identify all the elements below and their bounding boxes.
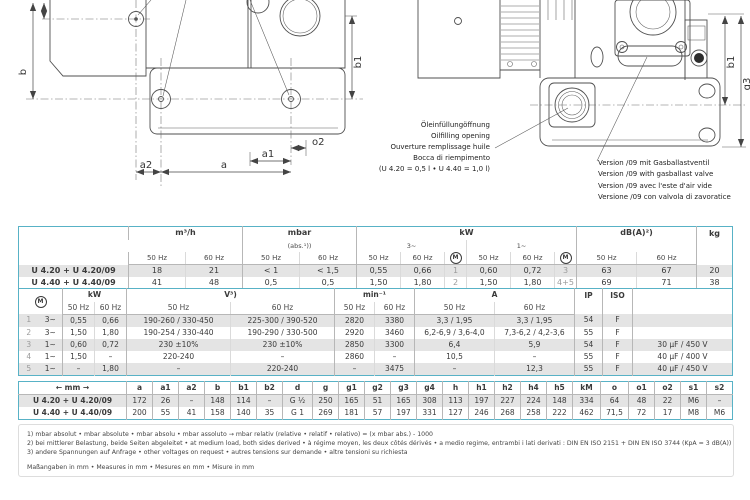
note-line: Version /09 mit Gasballastventil xyxy=(598,158,731,169)
value-cell: 1,50 xyxy=(63,351,95,363)
note-line: Oilfilling opening xyxy=(308,131,490,142)
value-cell: 22 xyxy=(655,395,681,408)
col-header: a1 xyxy=(153,382,179,395)
col-header: a2 xyxy=(179,382,205,395)
value-cell: < 1 xyxy=(243,265,300,278)
col-header: h1 xyxy=(469,382,495,395)
col-header-60hz: 60 Hz xyxy=(231,302,335,315)
value-cell: 1,80 xyxy=(95,327,127,339)
housing-outline xyxy=(540,78,720,146)
col-group-kw: kW xyxy=(63,289,127,302)
value-cell: 21 xyxy=(186,265,243,278)
dim-label-a1: a1 xyxy=(262,149,275,160)
phase-cell: 1~ xyxy=(39,363,63,376)
value-cell: F xyxy=(603,339,633,351)
value-cell: F xyxy=(603,327,633,339)
value-cell: 462 xyxy=(573,407,601,420)
value-cell: 148 xyxy=(547,395,573,408)
col-header: o xyxy=(601,382,629,395)
col-header: h2 xyxy=(495,382,521,395)
one-phase-label: 1~ xyxy=(467,240,577,252)
value-cell: 308 xyxy=(417,395,443,408)
col-header: b2 xyxy=(257,382,283,395)
col-header-60hz: 60 Hz xyxy=(300,252,357,265)
pump-top-view-drawing: b b1 a2 a a1 o2 xyxy=(18,0,398,220)
col-header: b xyxy=(205,382,231,395)
footnote-1: 1) mbar absolut • mbar absolute • mbar a… xyxy=(27,430,725,439)
col-group-speed: min⁻¹ xyxy=(335,289,415,302)
value-cell: 230 ±10% xyxy=(127,339,231,351)
value-cell: – xyxy=(707,395,733,408)
capacitor-cell: 30 µF / 450 V xyxy=(633,339,733,351)
value-cell: 67 xyxy=(637,265,697,278)
value-cell: 230 ±10% xyxy=(231,339,335,351)
value-cell: 268 xyxy=(495,407,521,420)
col-header: d xyxy=(283,382,313,395)
value-cell: 190-254 / 330-440 xyxy=(127,327,231,339)
performance-table: m³/h mbar kW dB(A)²) kg (abs.¹)) 3~ 1~ 5… xyxy=(18,226,733,290)
value-cell: 181 xyxy=(339,407,365,420)
col-header: g1 xyxy=(339,382,365,395)
dim-label-b: b xyxy=(18,69,29,75)
value-cell: 172 xyxy=(127,395,153,408)
value-cell: 48 xyxy=(629,395,655,408)
col-header-50hz: 50 Hz xyxy=(335,302,375,315)
value-cell: 246 xyxy=(469,407,495,420)
phase-cell: 1~ xyxy=(39,351,63,363)
motor-circle-icon: M xyxy=(19,289,63,315)
phase-cell: 1~ xyxy=(39,339,63,351)
value-cell: 224 xyxy=(521,395,547,408)
col-header-50hz: 50 Hz xyxy=(357,252,401,265)
motor-electrical-table: M kW V³) min⁻¹ A IP ISO 50 Hz 60 Hz 50 H… xyxy=(18,288,733,376)
spacer-cell xyxy=(129,240,243,252)
motor-number-cell: 2 xyxy=(19,327,39,339)
callout-leaders xyxy=(495,57,647,161)
footnotes: 1) mbar absolut • mbar absolute • mbar a… xyxy=(18,424,734,477)
note-line: (U 4.20 = 0,5 l • U 4.40 = 1,0 l) xyxy=(308,164,490,175)
value-cell: – xyxy=(495,351,575,363)
value-cell: 3460 xyxy=(375,327,415,339)
value-cell: G ½ xyxy=(283,395,313,408)
value-cell: 7,3-6,2 / 4,2-3,6 xyxy=(495,327,575,339)
value-cell: 0,66 xyxy=(401,265,445,278)
model-cell: U 4.20 + U 4.20/09 xyxy=(19,265,129,278)
value-cell: – xyxy=(179,395,205,408)
value-cell: 269 xyxy=(313,407,339,420)
value-cell: 3475 xyxy=(375,363,415,376)
value-cell: 158 xyxy=(205,407,231,420)
value-cell: – xyxy=(257,395,283,408)
value-cell: – xyxy=(127,363,231,376)
value-cell: 3380 xyxy=(375,314,415,327)
col-header-60hz: 60 Hz xyxy=(511,252,555,265)
col-header-60hz: 60 Hz xyxy=(637,252,697,265)
col-header-60hz: 60 Hz xyxy=(186,252,243,265)
col-header: h xyxy=(443,382,469,395)
dimension-b1-right: b1 g3 xyxy=(708,14,750,147)
oil-filling-note: Öleinfüllungöffnung Oilfilling opening O… xyxy=(308,120,490,175)
note-line: Version /09 with gasballast valve xyxy=(598,169,731,180)
value-cell: 64 xyxy=(601,395,629,408)
value-cell: F xyxy=(603,351,633,363)
value-cell: 1,80 xyxy=(95,363,127,376)
value-cell: F xyxy=(603,363,633,376)
motor-ref-cell: 3 xyxy=(555,265,577,278)
footnote-2: 2) bei mittlerer Belastung, beide Seiten… xyxy=(27,439,725,448)
value-cell: 12,3 xyxy=(495,363,575,376)
value-cell: 2860 xyxy=(335,351,375,363)
value-cell: 331 xyxy=(417,407,443,420)
value-cell: M6 xyxy=(707,407,733,420)
col-group-pressure: mbar xyxy=(243,227,357,240)
col-header: o1 xyxy=(629,382,655,395)
col-header-50hz: 50 Hz xyxy=(63,302,95,315)
model-column-header xyxy=(19,227,129,265)
value-cell: 190-290 / 330-500 xyxy=(231,327,335,339)
capacitor-column-header xyxy=(633,289,733,315)
col-group-iso: ISO xyxy=(603,289,633,315)
dimensions-table: ← mm → a a1 a2 b b1 b2 d g g1 g2 g3 g4 h… xyxy=(18,381,733,420)
value-cell: 54 xyxy=(575,314,603,327)
three-phase-label: 3~ xyxy=(357,240,467,252)
capacitor-cell: 40 µF / 450 V xyxy=(633,363,733,376)
value-cell: 55 xyxy=(575,351,603,363)
value-cell: F xyxy=(603,314,633,327)
value-cell: 225-300 / 390-520 xyxy=(231,314,335,327)
value-cell: 6,2-6,9 / 3,6-4,0 xyxy=(415,327,495,339)
value-cell: 190-260 / 330-450 xyxy=(127,314,231,327)
col-header: g4 xyxy=(417,382,443,395)
datasheet-page: b b1 a2 a a1 o2 xyxy=(0,0,750,500)
dim-label-b1-side: b1 xyxy=(726,56,737,69)
value-cell: – xyxy=(231,351,335,363)
note-line: Version /09 avec l'este d'air vide xyxy=(598,181,731,192)
value-cell: – xyxy=(63,363,95,376)
value-cell: G 1 xyxy=(283,407,313,420)
measures-note: Maßangaben in mm • Measures in mm • Mesu… xyxy=(27,463,725,472)
value-cell: 250 xyxy=(313,395,339,408)
motor-number-cell: 1 xyxy=(19,314,39,327)
col-group-flow: m³/h xyxy=(129,227,243,240)
value-cell: – xyxy=(415,363,495,376)
col-group-ip: IP xyxy=(575,289,603,315)
value-cell: – xyxy=(95,351,127,363)
dimension-b1-left: b1 xyxy=(345,16,364,99)
dimension-b: b xyxy=(18,3,44,99)
value-cell: 0,55 xyxy=(63,314,95,327)
col-header: g xyxy=(313,382,339,395)
value-cell: 334 xyxy=(573,395,601,408)
col-header: a xyxy=(127,382,153,395)
col-header: o2 xyxy=(655,382,681,395)
value-cell: 3,3 / 1,95 xyxy=(495,314,575,327)
phase-cell: 3~ xyxy=(39,314,63,327)
value-cell: 6,4 xyxy=(415,339,495,351)
value-cell: 165 xyxy=(391,395,417,408)
value-cell: 5,9 xyxy=(495,339,575,351)
value-cell: 2850 xyxy=(335,339,375,351)
dim-label-g3: g3 xyxy=(742,78,750,91)
col-group-noise: dB(A)²) xyxy=(577,227,697,240)
spacer-cell xyxy=(577,240,697,252)
pump-outline xyxy=(50,0,345,134)
dimension-a-group: a2 a a1 o2 xyxy=(136,137,324,172)
value-cell: 197 xyxy=(469,395,495,408)
phase-cell: 3~ xyxy=(39,327,63,339)
col-header: kM xyxy=(573,382,601,395)
dim-label-a2: a2 xyxy=(140,160,153,171)
footnote-3: 3) andere Spannungen auf Anfrage • other… xyxy=(27,448,725,457)
model-cell: U 4.40 + U 4.40/09 xyxy=(19,407,127,420)
dim-label-a: a xyxy=(221,160,227,171)
col-header: b1 xyxy=(231,382,257,395)
value-cell: M6 xyxy=(681,395,707,408)
value-cell: 220-240 xyxy=(231,363,335,376)
value-cell: M8 xyxy=(681,407,707,420)
value-cell: 41 xyxy=(179,407,205,420)
col-header: h4 xyxy=(521,382,547,395)
value-cell: < 1,5 xyxy=(300,265,357,278)
motor-circle-icon: M xyxy=(555,252,577,265)
col-group-power: kW xyxy=(357,227,577,240)
value-cell: 57 xyxy=(365,407,391,420)
value-cell: 10,5 xyxy=(415,351,495,363)
note-line: Bocca di riempimento xyxy=(308,153,490,164)
value-cell: 17 xyxy=(655,407,681,420)
value-cell: 197 xyxy=(391,407,417,420)
value-cell: 20 xyxy=(697,265,733,278)
gasballast-version-note: Version /09 mit Gasballastventil Version… xyxy=(598,158,731,203)
value-cell: 0,60 xyxy=(63,339,95,351)
value-cell: 0,55 xyxy=(357,265,401,278)
mm-header: ← mm → xyxy=(19,382,127,395)
col-group-weight: kg xyxy=(697,227,733,265)
value-cell: 35 xyxy=(257,407,283,420)
value-cell: 114 xyxy=(231,395,257,408)
value-cell: 54 xyxy=(575,339,603,351)
col-header-60hz: 60 Hz xyxy=(375,302,415,315)
value-cell: 0,66 xyxy=(95,314,127,327)
value-cell: 222 xyxy=(547,407,573,420)
leader-lines xyxy=(138,0,289,96)
value-cell: 258 xyxy=(521,407,547,420)
motor-outline xyxy=(418,0,572,78)
col-header-50hz: 50 Hz xyxy=(577,252,637,265)
col-header-50hz: 50 Hz xyxy=(243,252,300,265)
value-cell: 63 xyxy=(577,265,637,278)
value-cell: 227 xyxy=(495,395,521,408)
value-cell: 220-240 xyxy=(127,351,231,363)
value-cell: 3300 xyxy=(375,339,415,351)
col-header: s2 xyxy=(707,382,733,395)
capacitor-cell: 40 µF / 400 V xyxy=(633,351,733,363)
value-cell: 2920 xyxy=(335,327,375,339)
value-cell: 148 xyxy=(205,395,231,408)
capacitor-cell xyxy=(633,314,733,327)
col-group-voltage: V³) xyxy=(127,289,335,302)
value-cell: 127 xyxy=(443,407,469,420)
value-cell: 140 xyxy=(231,407,257,420)
abs-note: (abs.¹)) xyxy=(243,240,357,252)
value-cell: – xyxy=(375,351,415,363)
col-header: h5 xyxy=(547,382,573,395)
value-cell: 51 xyxy=(365,395,391,408)
col-header-60hz: 60 Hz xyxy=(401,252,445,265)
note-line: Ouverture remplissage huile xyxy=(308,142,490,153)
value-cell: 55 xyxy=(575,327,603,339)
value-cell: 55 xyxy=(153,407,179,420)
value-cell: 55 xyxy=(575,363,603,376)
dim-label-b1: b1 xyxy=(353,56,364,69)
col-header: g3 xyxy=(391,382,417,395)
col-header-50hz: 50 Hz xyxy=(129,252,186,265)
motor-number-cell: 5 xyxy=(19,363,39,376)
col-group-current: A xyxy=(415,289,575,302)
motor-circle-icon: M xyxy=(445,252,467,265)
value-cell: 3,3 / 1,95 xyxy=(415,314,495,327)
motor-number-cell: 3 xyxy=(19,339,39,351)
note-line: Öleinfüllungöffnung xyxy=(308,120,490,131)
note-line: Versione /09 con valvola di zavoratice xyxy=(598,192,731,203)
value-cell: 2820 xyxy=(335,314,375,327)
value-cell: 71,5 xyxy=(601,407,629,420)
col-header: g2 xyxy=(365,382,391,395)
value-cell: 0,72 xyxy=(95,339,127,351)
value-cell: 72 xyxy=(629,407,655,420)
value-cell: 0,72 xyxy=(511,265,555,278)
col-header-60hz: 60 Hz xyxy=(95,302,127,315)
value-cell: 113 xyxy=(443,395,469,408)
col-header: s1 xyxy=(681,382,707,395)
capacitor-cell xyxy=(633,327,733,339)
model-cell: U 4.20 + U 4.20/09 xyxy=(19,395,127,408)
motor-number-cell: 4 xyxy=(19,351,39,363)
pump-head-outline xyxy=(575,0,707,80)
value-cell: 0,60 xyxy=(467,265,511,278)
value-cell: – xyxy=(335,363,375,376)
motor-ref-cell: 1 xyxy=(445,265,467,278)
col-header-60hz: 60 Hz xyxy=(495,302,575,315)
value-cell: 26 xyxy=(153,395,179,408)
value-cell: 1,50 xyxy=(63,327,95,339)
col-header-50hz: 50 Hz xyxy=(127,302,231,315)
value-cell: 18 xyxy=(129,265,186,278)
value-cell: 165 xyxy=(339,395,365,408)
col-header-50hz: 50 Hz xyxy=(415,302,495,315)
col-header-50hz: 50 Hz xyxy=(467,252,511,265)
value-cell: 200 xyxy=(127,407,153,420)
